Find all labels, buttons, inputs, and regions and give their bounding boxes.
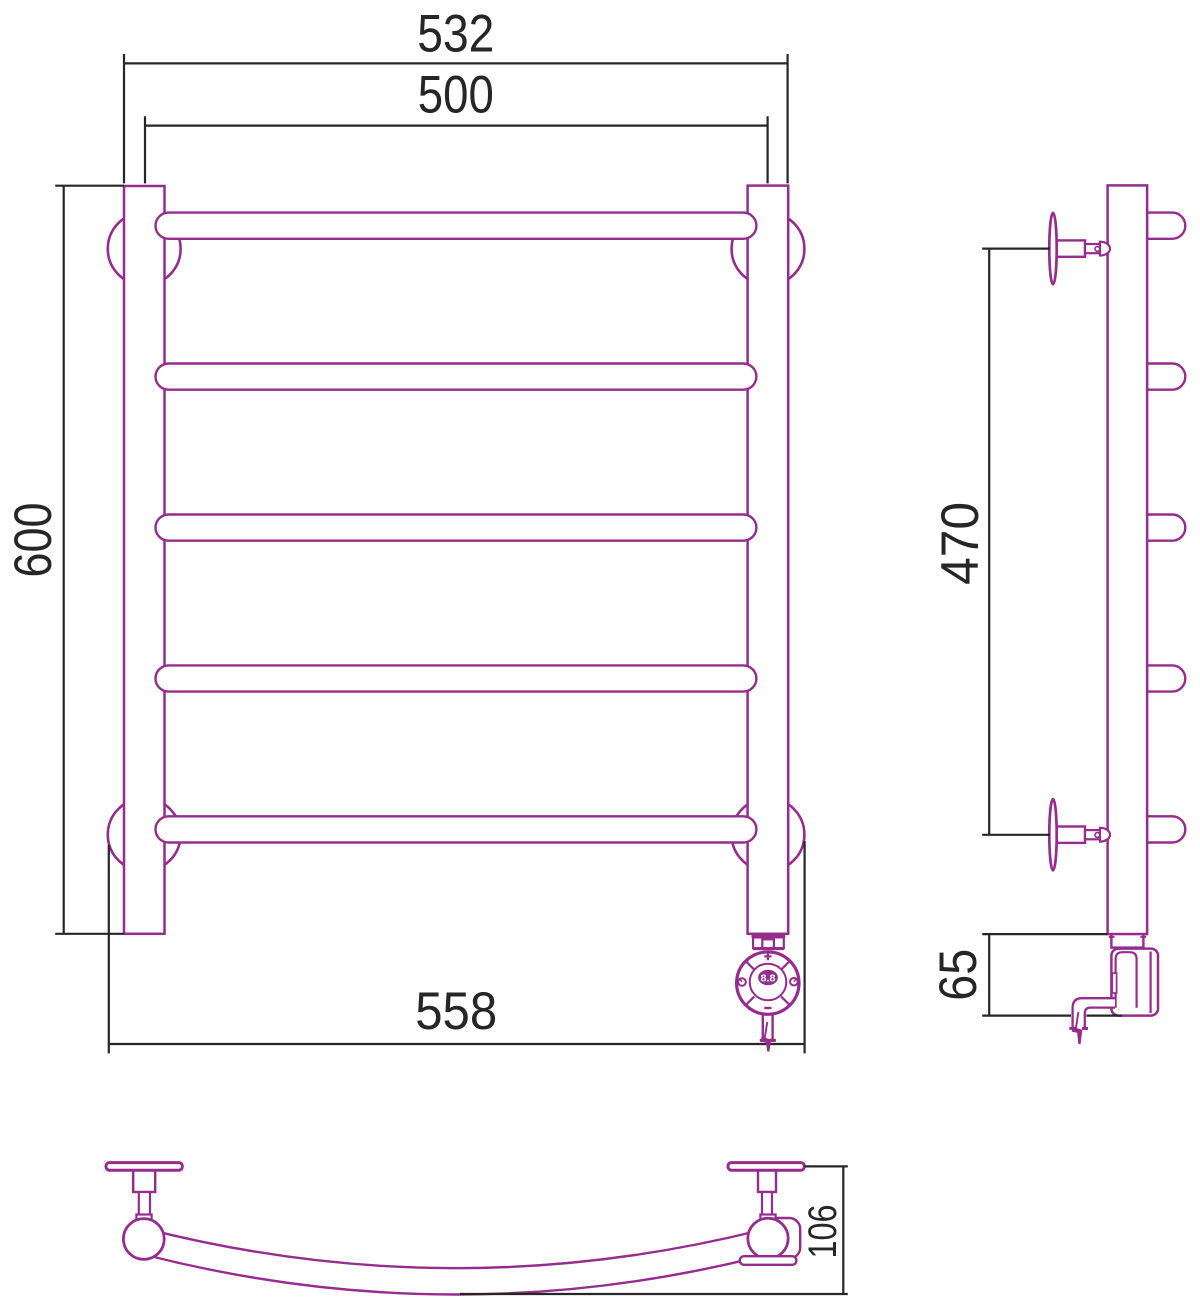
svg-text:500: 500 — [418, 65, 494, 124]
svg-text:8.8: 8.8 — [761, 972, 776, 984]
svg-text:470: 470 — [931, 502, 990, 585]
svg-text:65: 65 — [929, 949, 988, 1001]
svg-text:106: 106 — [801, 1205, 845, 1259]
svg-text:532: 532 — [417, 5, 494, 64]
svg-text:558: 558 — [415, 982, 497, 1041]
svg-text:600: 600 — [4, 503, 63, 578]
